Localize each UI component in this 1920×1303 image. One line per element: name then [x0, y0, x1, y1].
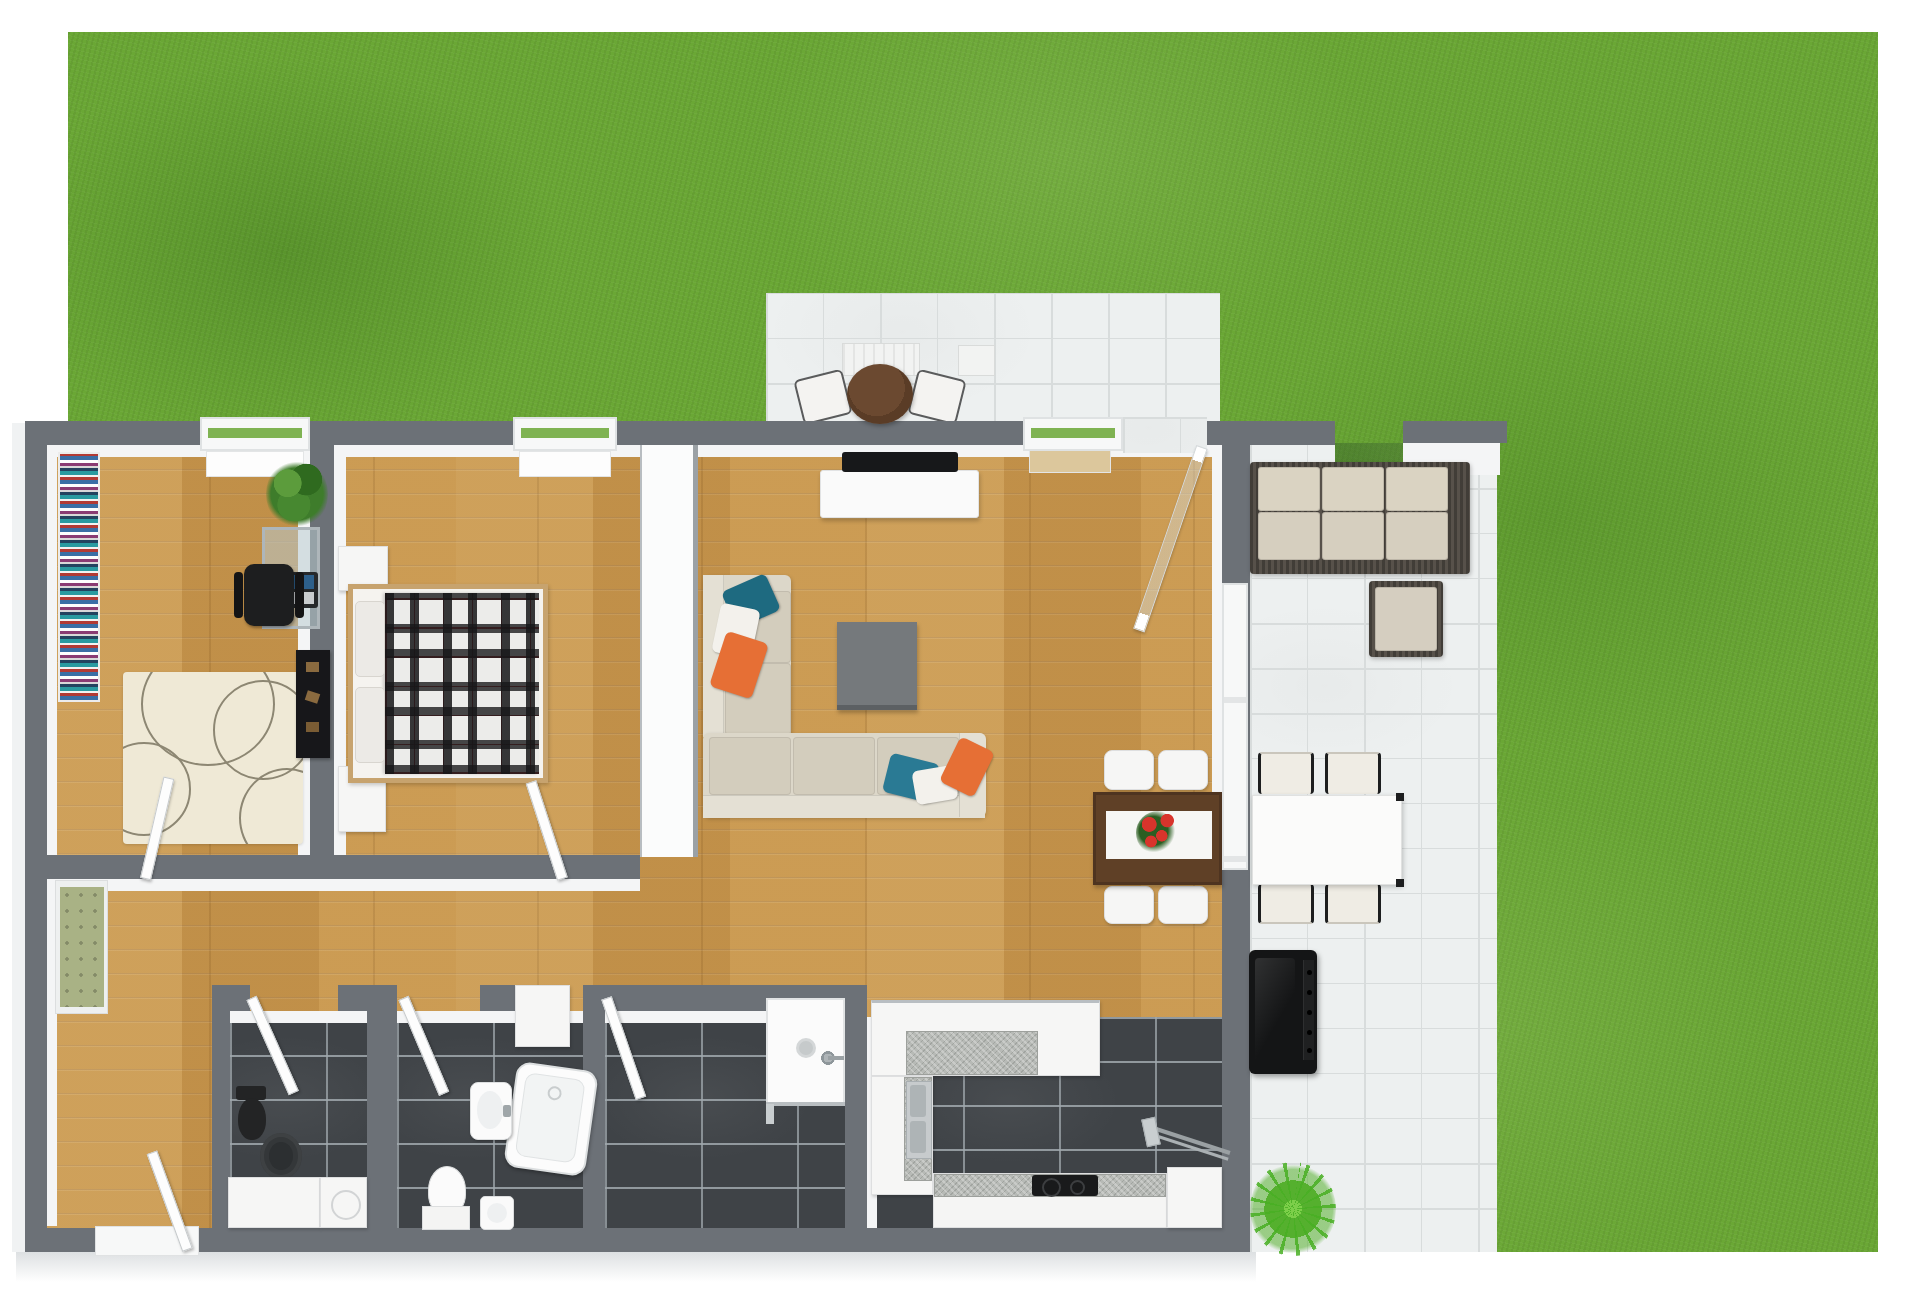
- coffee-table: [837, 622, 917, 710]
- bookshelf: [58, 452, 100, 702]
- grill-knob-4: [1307, 1030, 1312, 1035]
- office-chair-armrest-left: [234, 572, 243, 618]
- grill-knob-1: [1307, 970, 1312, 975]
- dark-round-rug: [260, 1133, 302, 1179]
- bistro-table: [847, 364, 913, 424]
- wall-bedroom-living: [640, 445, 698, 857]
- patio-storage-box-2: [958, 345, 995, 376]
- tv-console: [820, 470, 979, 518]
- outdoor-sofa-back-3: [1386, 467, 1448, 511]
- cooktop-burner-2: [1070, 1180, 1085, 1195]
- outdoor-sofa-seat-2: [1322, 512, 1384, 560]
- bath2-sink: [470, 1082, 512, 1140]
- bedroom-window-glass: [521, 428, 609, 438]
- wall-bottom: [25, 1228, 1250, 1252]
- bath1-vanity: [228, 1177, 320, 1228]
- kitchen-sink-bowl-1: [910, 1085, 926, 1117]
- kitchen-counter-left: [871, 1076, 933, 1195]
- rug-circle-3: [239, 768, 303, 844]
- grill-knob-2: [1307, 990, 1312, 995]
- outdoor-sofa-seat-1: [1258, 512, 1320, 560]
- face-left: [47, 445, 57, 1226]
- face-under-room-walls: [45, 879, 640, 891]
- shower-glass-edge: [766, 1102, 845, 1106]
- dining-chair-4: [1158, 886, 1208, 924]
- shower-arm: [828, 1056, 844, 1060]
- kitchen-sink: [906, 1081, 932, 1159]
- bathroom2-tall-cabinet: [515, 985, 570, 1047]
- patio-fern-plant: [1250, 1162, 1336, 1256]
- office-chair-seat: [244, 564, 294, 626]
- bbq-grill: [1249, 950, 1317, 1074]
- dining-chair-2: [1158, 750, 1208, 790]
- office-window: [200, 417, 310, 451]
- living-window: [1023, 417, 1123, 451]
- bed-pillow-1: [355, 601, 385, 677]
- sofa-seat-h1: [709, 737, 791, 795]
- shower-glass-knob: [766, 1104, 774, 1124]
- kitchen-sink-bowl-2: [910, 1121, 926, 1153]
- dining-table: [1093, 792, 1222, 885]
- grill-knob-5: [1307, 1048, 1312, 1053]
- black-toilet-bowl: [238, 1098, 266, 1140]
- face-left-outer: [12, 423, 25, 1252]
- cooktop-burner-1: [1042, 1178, 1061, 1197]
- wall-top-segment: [1403, 421, 1507, 443]
- sofa-seat-h2: [793, 737, 875, 795]
- outdoor-ottoman: [1369, 581, 1443, 657]
- kitchen-counter-top: [871, 1000, 1100, 1076]
- outdoor-sofa-back-2: [1322, 467, 1384, 511]
- outdoor-table-leg-1: [1396, 793, 1404, 801]
- wall-bath-top-c: [480, 985, 515, 1011]
- bed: [348, 584, 548, 783]
- bedroom-window: [513, 417, 617, 451]
- washing-machine: [320, 1177, 367, 1228]
- dining-side-window: [1222, 583, 1248, 870]
- dining-side-window-divider2: [1224, 856, 1246, 862]
- bedroom-window-sill: [519, 451, 611, 477]
- bath2-sink-basin: [477, 1091, 503, 1129]
- outdoor-chair-2: [1325, 752, 1381, 794]
- bath2-sink-faucet: [503, 1105, 511, 1117]
- outdoor-ottoman-cushion: [1375, 587, 1437, 651]
- kitchen-worktop-top: [906, 1031, 1038, 1075]
- grill-lid-highlight: [1255, 958, 1295, 1062]
- outdoor-sofa-seat-3: [1386, 512, 1448, 560]
- bed-blanket: [385, 593, 539, 774]
- office-dresser: [296, 650, 330, 758]
- rug-circle-2: [213, 680, 303, 780]
- office-chair: [232, 558, 306, 632]
- shower-tray: [766, 998, 845, 1104]
- bathtub-inner: [515, 1072, 586, 1164]
- living-window-bench: [1029, 449, 1111, 473]
- office-rug: [123, 672, 303, 844]
- centerpiece-red-flowers: [1142, 813, 1178, 851]
- kitchen-counter-bottom: [933, 1173, 1167, 1228]
- office-plant: [266, 458, 328, 530]
- wall-shower-kitchen: [845, 985, 867, 1228]
- washing-machine-door: [331, 1190, 361, 1220]
- hall-bench-cushion: [60, 887, 104, 1007]
- dresser-handle-2: [305, 690, 320, 704]
- floorplan-canvas: [0, 0, 1920, 1303]
- dresser-handle-3: [306, 722, 319, 732]
- outdoor-sofa: [1250, 462, 1470, 574]
- bidet-basin: [487, 1203, 507, 1223]
- outdoor-table-leg-2: [1396, 879, 1404, 887]
- wall-bath1-bath2: [367, 985, 397, 1228]
- office-chair-armrest-right: [295, 572, 304, 618]
- bidet: [480, 1196, 514, 1230]
- tv: [842, 452, 958, 472]
- grill-side-rail: [1303, 960, 1314, 1060]
- dresser-handle-1: [306, 662, 319, 672]
- wall-left: [25, 421, 47, 1252]
- bath2-toilet-tank: [422, 1206, 470, 1230]
- outdoor-table: [1252, 795, 1402, 885]
- wall-bedroom-bottom: [334, 855, 640, 879]
- outdoor-sofa-back-1: [1258, 467, 1320, 511]
- dining-chair-3: [1104, 886, 1154, 924]
- bathtub: [503, 1061, 599, 1177]
- hall-bench: [55, 880, 108, 1014]
- face-bath1: [230, 1011, 367, 1023]
- kitchen-corner-cabinet: [1167, 1167, 1222, 1228]
- shower-drain: [796, 1038, 816, 1058]
- outdoor-chair-4: [1325, 884, 1381, 924]
- cooktop: [1032, 1175, 1098, 1196]
- living-window-glass: [1031, 428, 1115, 438]
- house-shadow: [16, 1252, 1256, 1282]
- outdoor-chair-1: [1258, 752, 1314, 794]
- wall-office-bottom: [45, 855, 334, 879]
- grill-knob-3: [1307, 1010, 1312, 1015]
- dining-chair-1: [1104, 750, 1154, 790]
- bed-pillow-2: [355, 687, 385, 763]
- dining-side-window-divider1: [1224, 697, 1246, 703]
- office-window-glass: [208, 428, 302, 438]
- outdoor-chair-3: [1258, 884, 1314, 924]
